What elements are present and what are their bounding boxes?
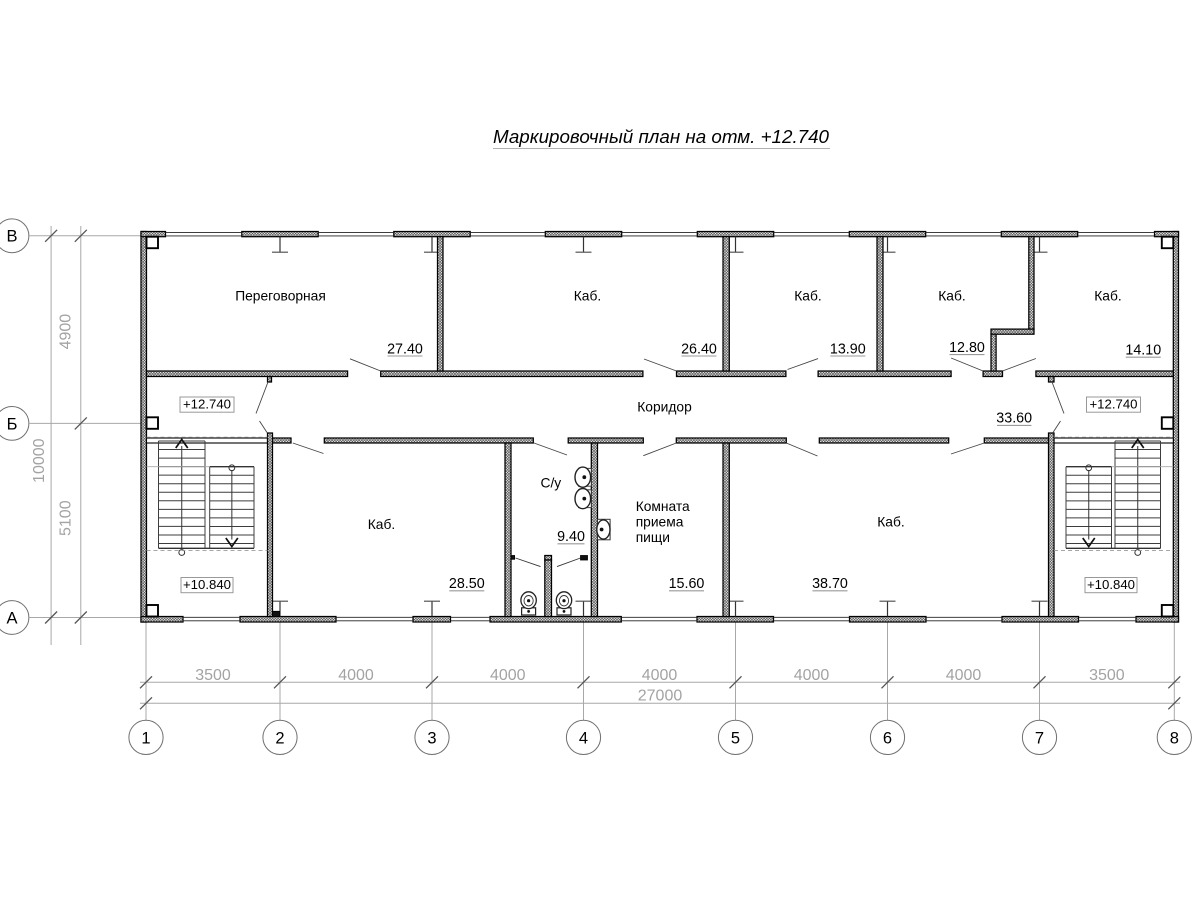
svg-text:А: А <box>6 609 17 627</box>
svg-text:приема: приема <box>636 515 684 530</box>
svg-text:6: 6 <box>883 729 892 747</box>
svg-text:33.60: 33.60 <box>996 411 1032 427</box>
svg-text:Каб.: Каб. <box>794 288 821 303</box>
svg-text:4900: 4900 <box>58 314 75 350</box>
svg-text:Каб.: Каб. <box>938 288 965 303</box>
svg-text:Каб.: Каб. <box>368 517 395 532</box>
svg-text:7: 7 <box>1035 729 1044 747</box>
svg-text:5: 5 <box>731 729 740 747</box>
svg-text:4000: 4000 <box>490 667 526 684</box>
svg-text:Комната: Комната <box>636 499 690 514</box>
svg-text:Маркировочный план на отм. +12: Маркировочный план на отм. +12.740 <box>493 126 830 147</box>
svg-text:3500: 3500 <box>195 667 231 684</box>
svg-text:Коридор: Коридор <box>637 399 692 414</box>
svg-text:Каб.: Каб. <box>574 288 601 303</box>
svg-text:С/у: С/у <box>541 476 562 491</box>
svg-text:+10.840: +10.840 <box>183 577 231 592</box>
svg-text:13.90: 13.90 <box>830 341 866 357</box>
svg-text:9.40: 9.40 <box>557 529 585 545</box>
svg-text:пищи: пищи <box>636 530 670 545</box>
svg-text:27.40: 27.40 <box>387 341 423 357</box>
svg-text:8: 8 <box>1170 729 1179 747</box>
svg-text:28.50: 28.50 <box>449 576 485 592</box>
svg-text:4000: 4000 <box>794 667 830 684</box>
svg-text:3: 3 <box>427 729 436 747</box>
svg-text:4000: 4000 <box>642 667 678 684</box>
svg-text:4000: 4000 <box>338 667 374 684</box>
svg-text:14.10: 14.10 <box>1125 343 1161 359</box>
svg-text:2: 2 <box>275 729 284 747</box>
svg-text:Каб.: Каб. <box>1094 288 1121 303</box>
svg-text:12.80: 12.80 <box>949 340 985 356</box>
svg-text:Каб.: Каб. <box>877 515 904 530</box>
svg-text:5100: 5100 <box>58 500 75 536</box>
svg-text:26.40: 26.40 <box>681 341 717 357</box>
svg-text:3500: 3500 <box>1089 667 1125 684</box>
svg-text:+10.840: +10.840 <box>1087 577 1135 592</box>
svg-text:1: 1 <box>141 729 150 747</box>
svg-text:+12.740: +12.740 <box>1089 397 1137 412</box>
svg-text:Б: Б <box>7 415 18 433</box>
svg-text:В: В <box>6 228 17 246</box>
svg-text:27000: 27000 <box>638 687 683 704</box>
svg-text:+12.740: +12.740 <box>183 397 231 412</box>
svg-text:4000: 4000 <box>946 667 982 684</box>
svg-text:38.70: 38.70 <box>812 576 848 592</box>
svg-text:Переговорная: Переговорная <box>235 288 326 303</box>
svg-text:10000: 10000 <box>31 438 48 483</box>
svg-text:4: 4 <box>579 729 588 747</box>
svg-text:15.60: 15.60 <box>669 576 705 592</box>
